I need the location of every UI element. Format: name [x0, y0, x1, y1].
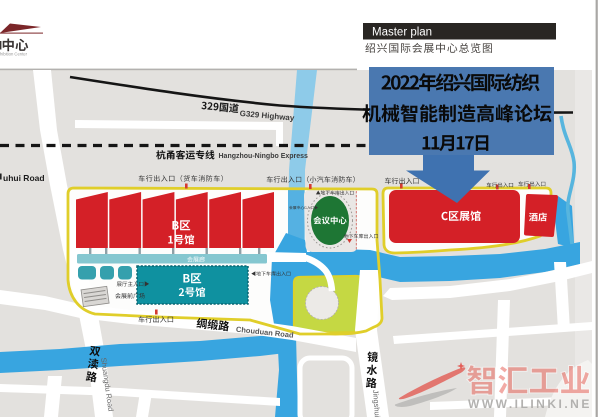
- svg-text:Hangzhou-Ningbo Express: Hangzhou-Ningbo Express: [219, 153, 309, 160]
- svg-text:WWW.ILINKI.NET: WWW.ILINKI.NET: [468, 397, 600, 411]
- svg-text:hibition Center: hibition Center: [0, 52, 28, 57]
- svg-text:uhui Road: uhui Road: [3, 173, 45, 183]
- svg-text:Master plan: Master plan: [372, 27, 432, 39]
